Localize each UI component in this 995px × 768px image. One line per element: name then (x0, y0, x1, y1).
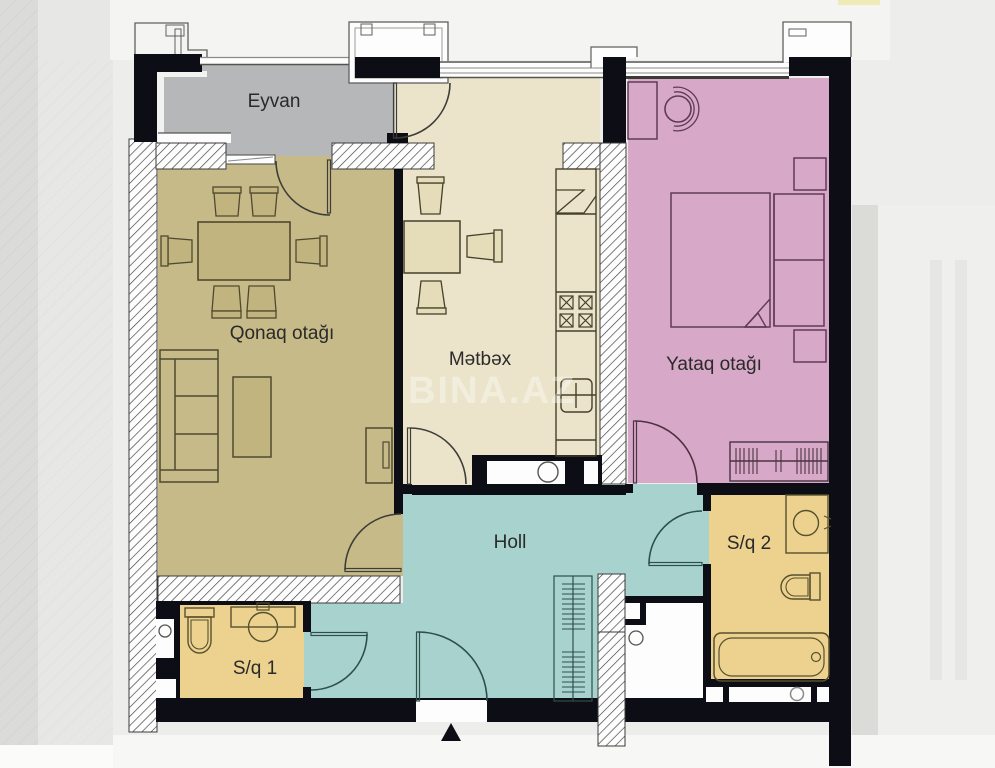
svg-text:BINA.AZ: BINA.AZ (408, 370, 576, 412)
svg-text:Yataq otağı: Yataq otağı (666, 354, 762, 375)
svg-text:Mətbəx: Mətbəx (449, 349, 512, 370)
svg-text:S/q 1: S/q 1 (233, 658, 277, 679)
svg-text:S/q 2: S/q 2 (727, 533, 771, 554)
svg-text:Qonaq otağı: Qonaq otağı (230, 323, 335, 344)
svg-text:Holl: Holl (494, 532, 527, 553)
svg-text:Eyvan: Eyvan (248, 91, 301, 112)
